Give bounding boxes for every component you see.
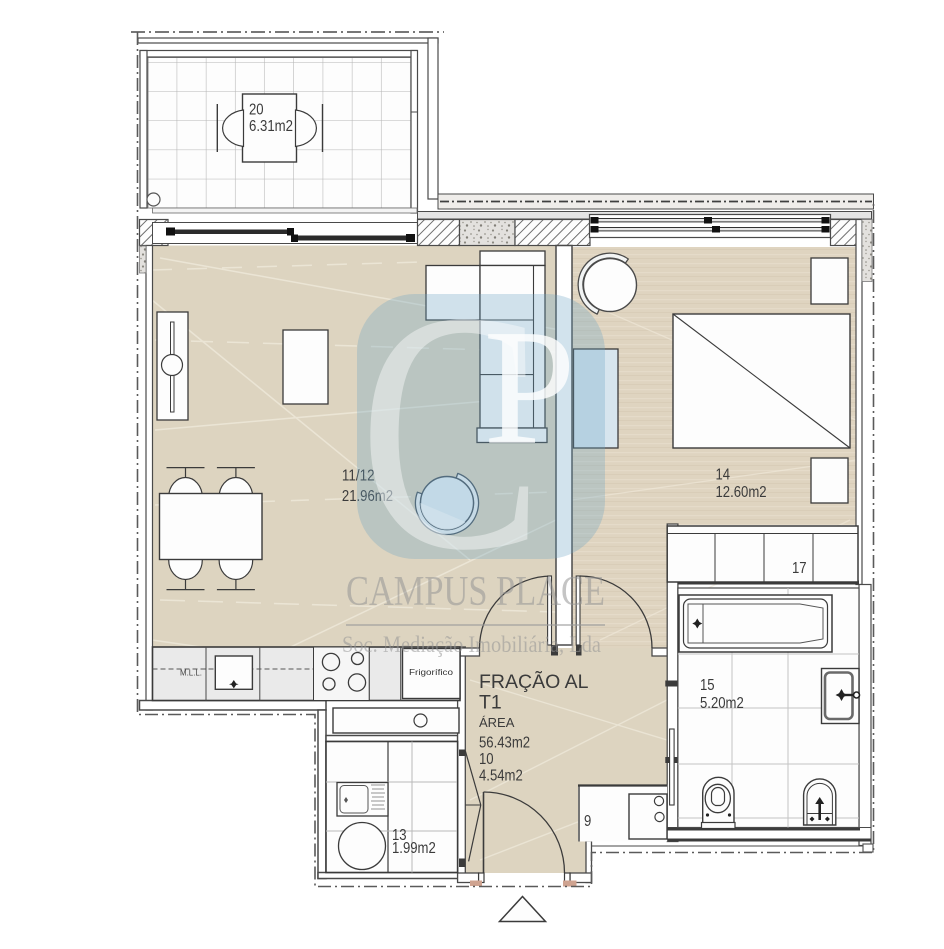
svg-text:12.60m2: 12.60m2 [716,484,767,501]
svg-text:20: 20 [249,101,264,118]
svg-text:17: 17 [792,560,807,577]
svg-text:ÁREA: ÁREA [479,715,515,730]
svg-text:M.L.L.: M.L.L. [180,669,202,678]
svg-text:5.20m2: 5.20m2 [700,695,744,712]
svg-text:56.43m2: 56.43m2 [479,734,530,751]
svg-text:9: 9 [584,813,591,830]
svg-text:Soc. Mediação Imobiliária, Lda: Soc. Mediação Imobiliária, Lda [342,632,601,657]
svg-text:14: 14 [716,467,731,484]
svg-text:P: P [483,295,575,479]
svg-text:15: 15 [700,677,715,694]
svg-text:FRAÇÃO AL: FRAÇÃO AL [479,669,589,693]
svg-text:10: 10 [479,751,494,768]
svg-text:T1: T1 [479,692,502,714]
svg-text:1.99m2: 1.99m2 [392,840,436,857]
svg-text:4.54m2: 4.54m2 [479,768,523,785]
svg-text:6.31m2: 6.31m2 [249,118,293,135]
svg-text:CAMPUS PLACE: CAMPUS PLACE [346,569,605,615]
svg-text:Frigorífico: Frigorífico [409,668,454,677]
